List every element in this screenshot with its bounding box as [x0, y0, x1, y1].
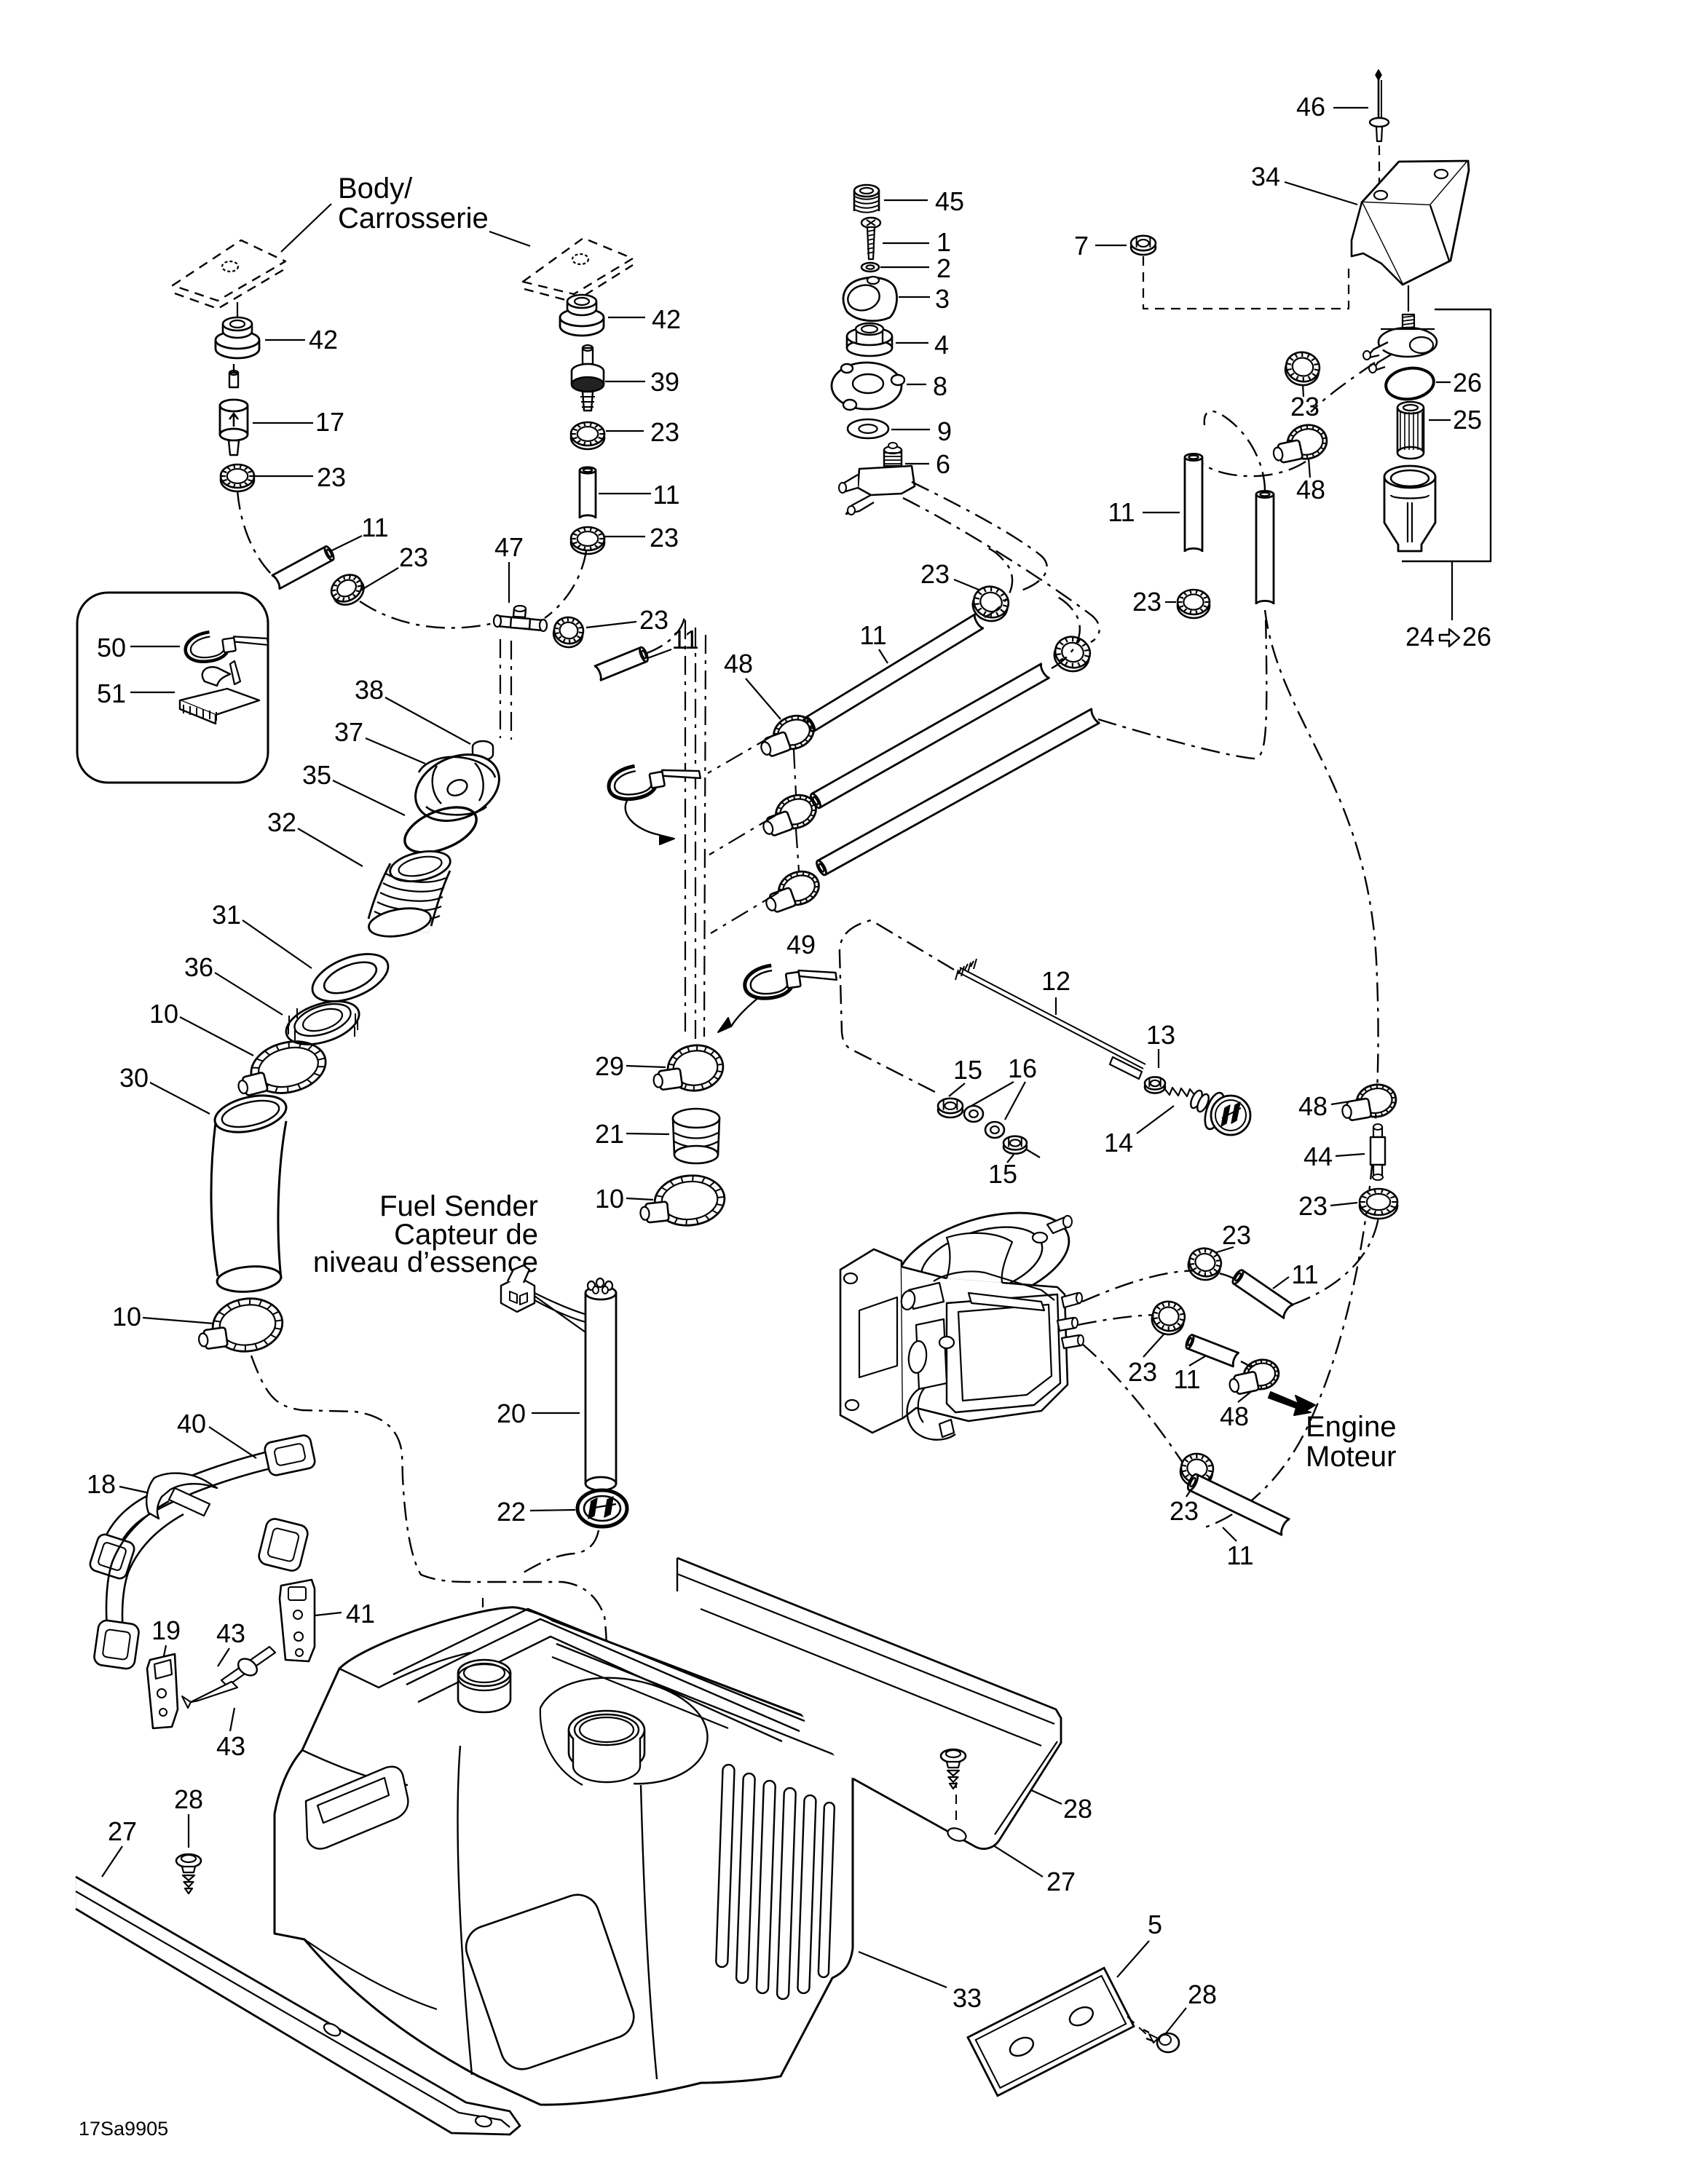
svg-text:28: 28: [174, 1784, 203, 1814]
svg-text:45: 45: [935, 186, 964, 216]
svg-text:16: 16: [1008, 1053, 1037, 1083]
svg-text:23: 23: [399, 542, 428, 572]
svg-text:22: 22: [497, 1497, 526, 1527]
svg-text:6: 6: [936, 449, 950, 479]
svg-text:27: 27: [1046, 1867, 1076, 1896]
svg-text:9: 9: [937, 416, 952, 446]
svg-text:23: 23: [1170, 1496, 1199, 1526]
svg-text:48: 48: [724, 649, 753, 678]
svg-text:43: 43: [216, 1618, 245, 1648]
svg-text:2: 2: [936, 253, 951, 283]
svg-text:36: 36: [184, 952, 213, 982]
svg-text:49: 49: [786, 930, 816, 960]
svg-text:23: 23: [1298, 1191, 1328, 1221]
svg-text:33: 33: [953, 1983, 982, 2013]
svg-text:5: 5: [1148, 1910, 1162, 1939]
svg-text:23: 23: [650, 417, 679, 447]
svg-text:10: 10: [595, 1184, 624, 1214]
svg-text:7: 7: [1074, 231, 1089, 261]
svg-text:24: 24: [1405, 622, 1435, 652]
svg-text:11: 11: [1173, 1364, 1200, 1394]
svg-text:14: 14: [1104, 1128, 1133, 1158]
svg-text:50: 50: [97, 633, 126, 662]
svg-text:39: 39: [650, 367, 679, 397]
svg-text:11: 11: [1291, 1259, 1318, 1289]
svg-text:46: 46: [1296, 92, 1325, 122]
svg-text:40: 40: [177, 1409, 206, 1439]
svg-text:42: 42: [652, 304, 681, 334]
svg-text:1: 1: [936, 227, 951, 257]
svg-text:17: 17: [315, 407, 344, 437]
svg-text:41: 41: [346, 1599, 375, 1629]
svg-text:47: 47: [494, 532, 524, 562]
svg-text:48: 48: [1296, 475, 1325, 505]
svg-text:51: 51: [97, 678, 126, 708]
svg-text:17Sa9905: 17Sa9905: [79, 2118, 168, 2140]
svg-text:11: 11: [859, 620, 886, 650]
svg-text:38: 38: [355, 675, 384, 705]
svg-text:44: 44: [1304, 1142, 1333, 1171]
svg-text:43: 43: [216, 1731, 245, 1761]
svg-text:23: 23: [1128, 1357, 1157, 1387]
svg-text:26: 26: [1462, 622, 1491, 652]
svg-text:28: 28: [1188, 1979, 1217, 2009]
svg-text:29: 29: [595, 1051, 624, 1081]
svg-text:4: 4: [934, 330, 949, 360]
svg-text:18: 18: [87, 1469, 116, 1499]
svg-text:21: 21: [595, 1119, 624, 1149]
svg-text:25: 25: [1453, 405, 1482, 435]
svg-text:30: 30: [119, 1063, 149, 1093]
svg-text:34: 34: [1251, 162, 1280, 191]
svg-text:11: 11: [361, 513, 388, 542]
svg-text:15: 15: [953, 1055, 982, 1085]
svg-text:23: 23: [650, 523, 679, 553]
svg-text:20: 20: [497, 1398, 526, 1428]
svg-text:11: 11: [1226, 1540, 1253, 1570]
svg-text:48: 48: [1220, 1401, 1249, 1431]
svg-text:12: 12: [1041, 966, 1070, 996]
svg-text:10: 10: [149, 999, 178, 1029]
svg-text:23: 23: [1132, 587, 1162, 617]
svg-text:19: 19: [151, 1615, 181, 1645]
svg-text:13: 13: [1146, 1020, 1175, 1050]
svg-text:48: 48: [1298, 1091, 1328, 1121]
svg-text:23: 23: [920, 559, 950, 589]
svg-text:8: 8: [933, 371, 947, 401]
svg-text:23: 23: [639, 605, 669, 635]
svg-text:Engine: Engine: [1306, 1411, 1397, 1443]
svg-text:Fuel Sender: Fuel Sender: [379, 1190, 538, 1222]
svg-text:35: 35: [302, 760, 331, 790]
svg-text:27: 27: [108, 1816, 137, 1846]
svg-text:10: 10: [112, 1302, 141, 1332]
svg-text:26: 26: [1453, 368, 1482, 397]
svg-text:Moteur: Moteur: [1306, 1441, 1397, 1473]
svg-text:23: 23: [317, 462, 346, 492]
svg-text:42: 42: [309, 325, 338, 355]
svg-text:Body/: Body/: [338, 173, 413, 205]
svg-text:23: 23: [1222, 1220, 1251, 1250]
svg-text:15: 15: [988, 1159, 1017, 1189]
svg-text:11: 11: [1108, 497, 1135, 527]
svg-text:Carrosserie: Carrosserie: [338, 202, 489, 234]
svg-text:32: 32: [267, 807, 296, 837]
svg-text:3: 3: [935, 284, 950, 314]
svg-text:11: 11: [652, 480, 679, 510]
svg-text:37: 37: [334, 717, 363, 747]
svg-text:31: 31: [212, 900, 241, 930]
svg-text:28: 28: [1063, 1794, 1092, 1824]
svg-text:niveau d’essence: niveau d’essence: [313, 1246, 538, 1278]
